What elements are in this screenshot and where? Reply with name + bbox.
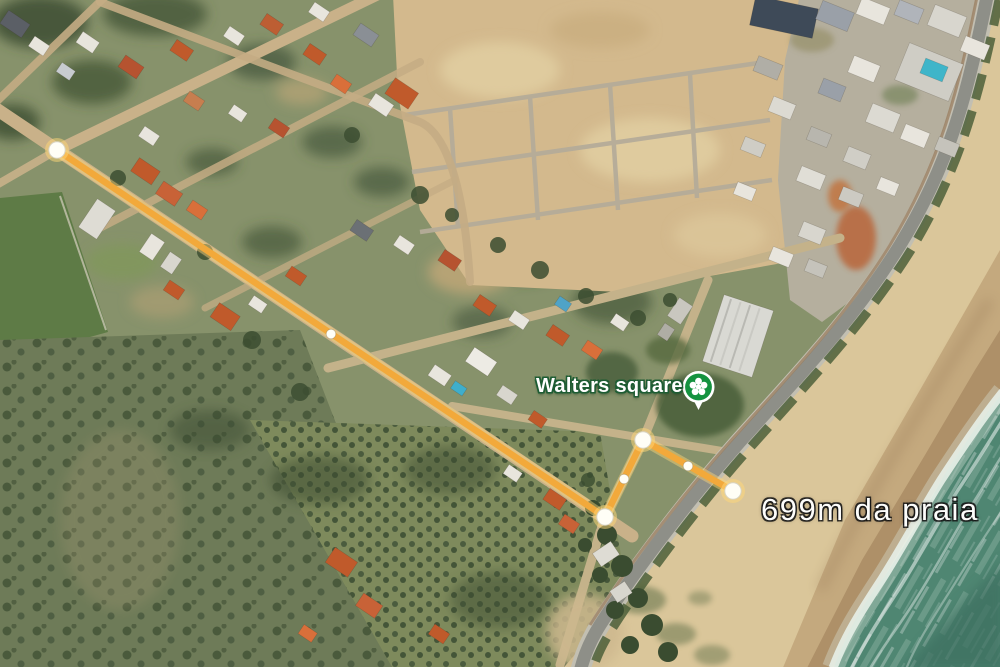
- satellite-terrain: [0, 0, 1000, 667]
- measure-midpoint-dot[interactable]: [619, 474, 629, 484]
- measure-midpoint-dot[interactable]: [326, 329, 336, 339]
- map-canvas[interactable]: Walters square 699m da praia: [0, 0, 1000, 667]
- distance-label: 699m da praia: [761, 492, 979, 528]
- place-label-walters-square[interactable]: Walters square: [536, 375, 683, 398]
- park-flower-pin-icon[interactable]: [680, 369, 717, 411]
- measure-vertex-dot[interactable]: [725, 483, 741, 499]
- measure-vertex-dot[interactable]: [597, 509, 613, 525]
- measure-vertex-dot[interactable]: [635, 432, 651, 448]
- measure-midpoint-dot[interactable]: [683, 461, 693, 471]
- measure-vertex-dot[interactable]: [49, 142, 65, 158]
